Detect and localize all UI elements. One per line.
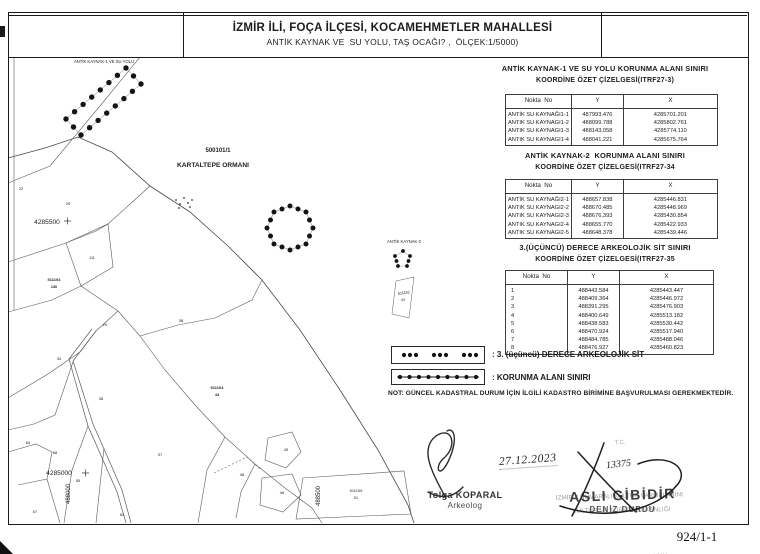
table-cell: 4285774.110: [623, 128, 717, 136]
title-separator-line: [8, 57, 748, 58]
table-cell: 4285802.761: [623, 120, 717, 128]
table-cell: 4285530.442: [620, 321, 714, 329]
table-header: X: [623, 95, 717, 109]
table-cell: 488657.838: [571, 194, 623, 206]
table-cell: 1: [506, 285, 568, 297]
signatory-name: Tolga KOPARAL: [405, 490, 525, 500]
table-2-subtitle: KOORDİNE ÖZET ÇİZELGESİ(ITRF27-34: [455, 164, 755, 171]
table-cell: 4285675.764: [623, 137, 717, 146]
table-row: 2488409.3644285446.972: [506, 296, 714, 304]
scan-artifact: [0, 541, 13, 554]
table-cell: 4285701.201: [623, 109, 717, 121]
legend-label-sit: : 3. (üçüncü) DERECE ARKEOLOJİK SİT: [492, 350, 644, 359]
table-row: ANTİK SU KAYNAĞI1-3488143.0584285774.110: [506, 128, 718, 136]
signatory-title: Arkeolog: [405, 501, 525, 510]
table-row: 3488391.2954285476.903: [506, 304, 714, 312]
table-cell: 488143.058: [571, 128, 623, 136]
table-row: ANTİK SU KAYNAĞI2-4488655.7704285422.933: [506, 222, 718, 230]
table-cell: 488041.221: [571, 137, 623, 146]
table-header: Y: [571, 95, 623, 109]
table-cell: ANTİK SU KAYNAĞI1-4: [506, 137, 572, 146]
table-cell: 488400.649: [568, 313, 620, 321]
table-cell: 488443.584: [568, 285, 620, 297]
table-cell: 2: [506, 296, 568, 304]
table-row: ANTİK SU KAYNAĞI1-2488099.7884285802.761: [506, 120, 718, 128]
table-2-title: ANTİK KAYNAK-2 KORUNMA ALANI SINIRI: [455, 151, 755, 160]
table-1-subtitle: KOORDİNE ÖZET ÇİZELGESİ(ITRF27-3): [455, 77, 755, 84]
table-row: ANTİK SU KAYNAĞI1-4488041.2214285675.764: [506, 137, 718, 146]
table-cell: 3: [506, 304, 568, 312]
table-cell: 4285430.854: [623, 213, 717, 221]
table-cell: 4285439.446: [623, 230, 717, 239]
table-row: 6488470.9244285517.940: [506, 329, 714, 337]
table-cell: 487993.476: [571, 109, 623, 121]
table-cell: 488676.393: [571, 213, 623, 221]
table-cell: ANTİK SU KAYNAĞI1-3: [506, 128, 572, 136]
table-header: Nokta No: [506, 95, 572, 109]
scan-artifact: [0, 26, 5, 37]
table-header: X: [623, 180, 717, 194]
table-cell: 4285443.447: [620, 285, 714, 297]
table-row: 5488438.5834285530.442: [506, 321, 714, 329]
table-cell: 4285476.903: [620, 304, 714, 312]
table-3-title: 3.(ÜÇÜNCÜ) DERECE ARKEOLOJİK SİT SINIRI: [455, 243, 755, 252]
table-cell: 488670.485: [571, 205, 623, 213]
table-row: ANTİK SU KAYNAĞI1-1487993.4764285701.201: [506, 109, 718, 121]
table-header: Y: [571, 180, 623, 194]
sit-dot-groups-icon: [392, 347, 484, 363]
table-cell: 488438.583: [568, 321, 620, 329]
table-1-title: ANTİK KAYNAK-1 VE SU YOLU KORUNMA ALANI …: [455, 64, 755, 73]
table-cell: 488484.785: [568, 337, 620, 345]
table-cell: ANTİK SU KAYNAĞI1-1: [506, 109, 572, 121]
table-cell: 4285517.940: [620, 329, 714, 337]
table-cell: 488099.788: [571, 120, 623, 128]
title-block: İZMİR İLİ, FOÇA İLÇESİ, KOCAMEHMETLER MA…: [183, 12, 602, 57]
table-cell: 4285513.182: [620, 313, 714, 321]
table-cell: 4285488.046: [620, 337, 714, 345]
table-cell: ANTİK SU KAYNAĞI2-2: [506, 205, 572, 213]
table-cell: 488648.378: [571, 230, 623, 239]
table-row: 1488443.5844285443.447: [506, 285, 714, 297]
certifier-name: DENİZ DURDU: [540, 505, 705, 514]
table-cell: 7: [506, 337, 568, 345]
table-cell: 4285446.831: [623, 194, 717, 206]
table-cell: 6: [506, 329, 568, 337]
legend-label-korunma: : KORUNMA ALANI SINIRI: [492, 373, 591, 382]
table-header: Nokta No: [506, 271, 568, 285]
document-subtitle: ANTİK KAYNAK VE SU YOLU, TAŞ OCAĞI? , ÖL…: [267, 37, 519, 47]
table-row: 4488400.6494285513.182: [506, 313, 714, 321]
table-cell: 488655.770: [571, 222, 623, 230]
stamp-line: KORUMA BÖLGE KURULUNUN: [500, 550, 742, 554]
table-3-subtitle: KOORDİNE ÖZET ÇİZELGESİ(ITRF27-35: [455, 256, 755, 263]
table-cell: ANTİK SU KAYNAĞI2-5: [506, 230, 572, 239]
table-cell: 488391.295: [568, 304, 620, 312]
table-cell: ANTİK SU KAYNAĞI2-1: [506, 194, 572, 206]
table-header: Nokta No: [506, 180, 572, 194]
coord-table-sit: Nokta NoYX1488443.5844285443.4472488409.…: [505, 270, 714, 355]
table-cell: 488470.924: [568, 329, 620, 337]
table-header: X: [620, 271, 714, 285]
table-cell: ANTİK SU KAYNAĞI1-2: [506, 120, 572, 128]
korunma-dot-line-icon: [392, 370, 484, 384]
table-header: Y: [568, 271, 620, 285]
table-row: ANTİK SU KAYNAĞI2-1488657.8384285446.831: [506, 194, 718, 206]
sheet-number: 924/1-1: [652, 529, 742, 545]
legend-symbol-korunma: [391, 369, 485, 385]
table-cell: ANTİK SU KAYNAĞI2-3: [506, 213, 572, 221]
table-cell: 4285446.972: [620, 296, 714, 304]
table-cell: 5: [506, 321, 568, 329]
table-cell: 488409.364: [568, 296, 620, 304]
table-cell: 4285422.933: [623, 222, 717, 230]
table-row: ANTİK SU KAYNAĞI2-5488648.3784285439.446: [506, 230, 718, 239]
table-cell: 4: [506, 313, 568, 321]
coord-table-kaynak2: Nokta NoYXANTİK SU KAYNAĞI2-1488657.8384…: [505, 179, 718, 239]
table-cell: ANTİK SU KAYNAĞI2-4: [506, 222, 572, 230]
table-row: ANTİK SU KAYNAĞI2-3488676.3934285430.854: [506, 213, 718, 221]
document-title: İZMİR İLİ, FOÇA İLÇESİ, KOCAMEHMETLER MA…: [233, 22, 552, 34]
coord-table-kaynak1: Nokta NoYXANTİK SU KAYNAĞI1-1487993.4764…: [505, 94, 718, 146]
scanned-map-document: ANTİK KAYNAK-1 VE SU YOLU500101/1KARTALT…: [0, 0, 760, 554]
table-row: 7488484.7854285488.046: [506, 337, 714, 345]
legend-symbol-sit: [391, 346, 485, 364]
table-row: ANTİK SU KAYNAĞI2-2488670.4854285448.969: [506, 205, 718, 213]
table-cell: 4285448.969: [623, 205, 717, 213]
